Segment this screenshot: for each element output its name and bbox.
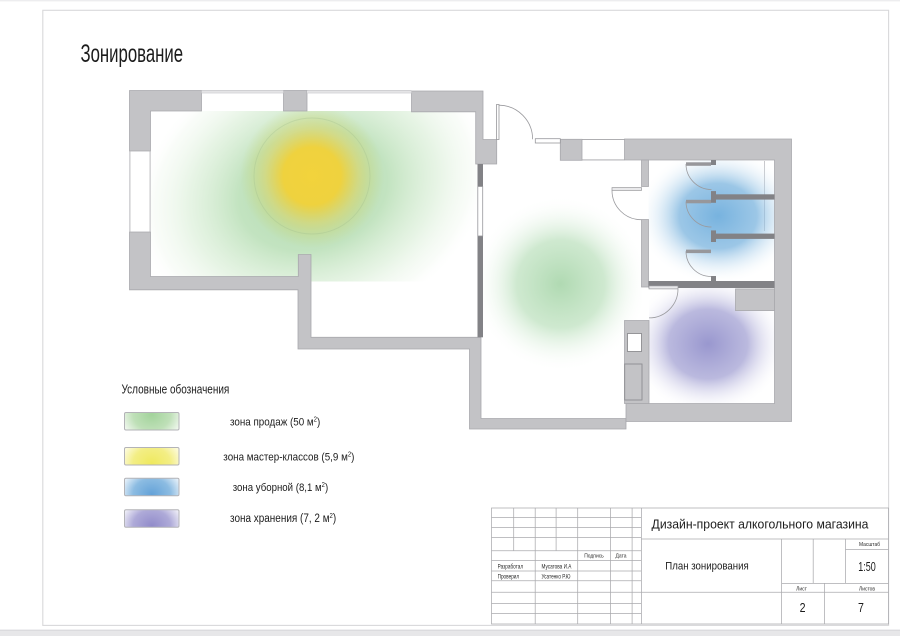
svg-text:1:50: 1:50 xyxy=(858,561,875,575)
svg-text:зона мастер-классов (5,9 м2): зона мастер-классов (5,9 м2) xyxy=(223,451,354,464)
svg-text:Усатенко Р.Ю: Усатенко Р.Ю xyxy=(542,574,572,581)
svg-text:зона продаж (50 м2): зона продаж (50 м2) xyxy=(230,416,320,429)
svg-text:Зонирование: Зонирование xyxy=(81,39,184,67)
svg-text:7: 7 xyxy=(858,601,864,615)
svg-text:зона уборной (8,1 м2): зона уборной (8,1 м2) xyxy=(233,481,328,494)
svg-text:Подпись: Подпись xyxy=(584,553,604,559)
svg-text:Условные обозначения: Условные обозначения xyxy=(122,384,230,397)
svg-text:Дизайн-проект алкогольного маг: Дизайн-проект алкогольного магазина xyxy=(652,517,870,531)
svg-text:2: 2 xyxy=(800,601,806,615)
svg-text:зона хранения (7, 2 м2): зона хранения (7, 2 м2) xyxy=(230,512,336,525)
svg-text:План зонирования: План зонирования xyxy=(665,560,749,573)
svg-text:Листов: Листов xyxy=(859,586,875,592)
svg-text:Мусатова И.А: Мусатова И.А xyxy=(542,564,572,571)
svg-text:Проверил: Проверил xyxy=(498,574,520,581)
svg-text:Дата: Дата xyxy=(616,553,627,559)
svg-text:Разработал: Разработал xyxy=(498,564,523,571)
svg-text:Масштаб: Масштаб xyxy=(859,541,880,547)
svg-text:Лист: Лист xyxy=(796,586,807,592)
